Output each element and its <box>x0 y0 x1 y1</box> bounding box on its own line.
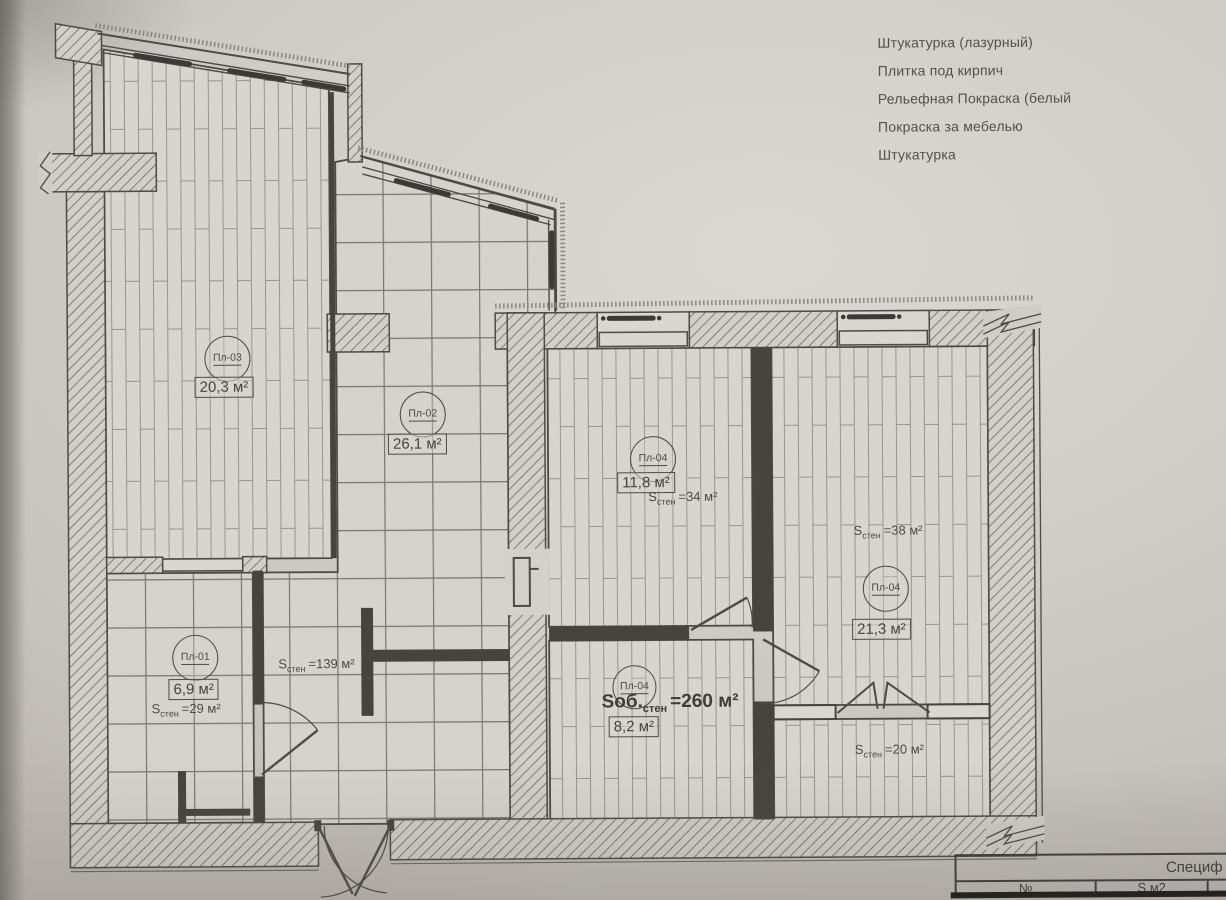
partition-t-horizontal <box>367 649 509 662</box>
legend-item: Рельефная Покраска (белый <box>878 90 1071 107</box>
wall-top-b <box>689 311 837 348</box>
area-pl01: 6,9 м² <box>168 679 218 700</box>
room-tag-pl01: Пл-01 <box>172 635 218 681</box>
s-wall-pl01: Sстен=29 м² <box>152 701 221 719</box>
wall-left-flange <box>48 153 156 192</box>
room-tag-pl03: Пл-03 <box>204 336 250 382</box>
s-wall-room21: Sстен=38 м² <box>853 522 922 540</box>
area-pl04b: 21,3 м² <box>852 619 911 640</box>
room-tag-pl04b: Пл-04 <box>863 566 909 612</box>
wall-corner-block <box>55 23 101 65</box>
s-wall-total: Sоб.стен=260 м² <box>601 691 738 716</box>
photo-bottom-shadow <box>0 760 1226 900</box>
window-2 <box>837 310 929 347</box>
area-pl04c: 8,2 м² <box>609 716 659 737</box>
room-pl03-floor <box>104 48 332 559</box>
legend-item: Штукатурка <box>878 146 956 162</box>
s-wall-balcony: Sстен=20 м² <box>855 741 924 759</box>
wall-step <box>348 64 363 162</box>
niche <box>163 559 243 571</box>
wall-pier <box>327 314 389 352</box>
wall-pl01-top-b <box>243 556 267 572</box>
pocket-door-symbol <box>505 549 550 615</box>
room-tag-pl02: Пл-02 <box>400 391 446 437</box>
s-wall-room11: Sстен=34 м² <box>648 489 717 507</box>
partition-room11 <box>549 626 689 641</box>
partition-right-upper <box>751 347 773 631</box>
window-1 <box>597 312 689 349</box>
legend-item: Штукатурка (лазурный) <box>877 34 1033 51</box>
wall-pl01-right-a <box>253 571 264 705</box>
sill-right <box>928 704 990 718</box>
wall-left-top-strip <box>74 56 93 156</box>
legend-item: Плитка под кирпич <box>878 62 1004 79</box>
photo-of-floor-plan: Штукатурка (лазурный) Плитка под кирпич … <box>0 0 1226 900</box>
area-pl03: 20,3 м² <box>195 377 254 398</box>
s-wall-hall: Sстен=139 м² <box>278 656 354 674</box>
area-pl02: 26,1 м² <box>388 433 447 454</box>
wall-pl01-top-a <box>107 557 163 573</box>
legend-item: Покраска за мебелью <box>878 118 1023 135</box>
sill-left <box>774 705 836 719</box>
